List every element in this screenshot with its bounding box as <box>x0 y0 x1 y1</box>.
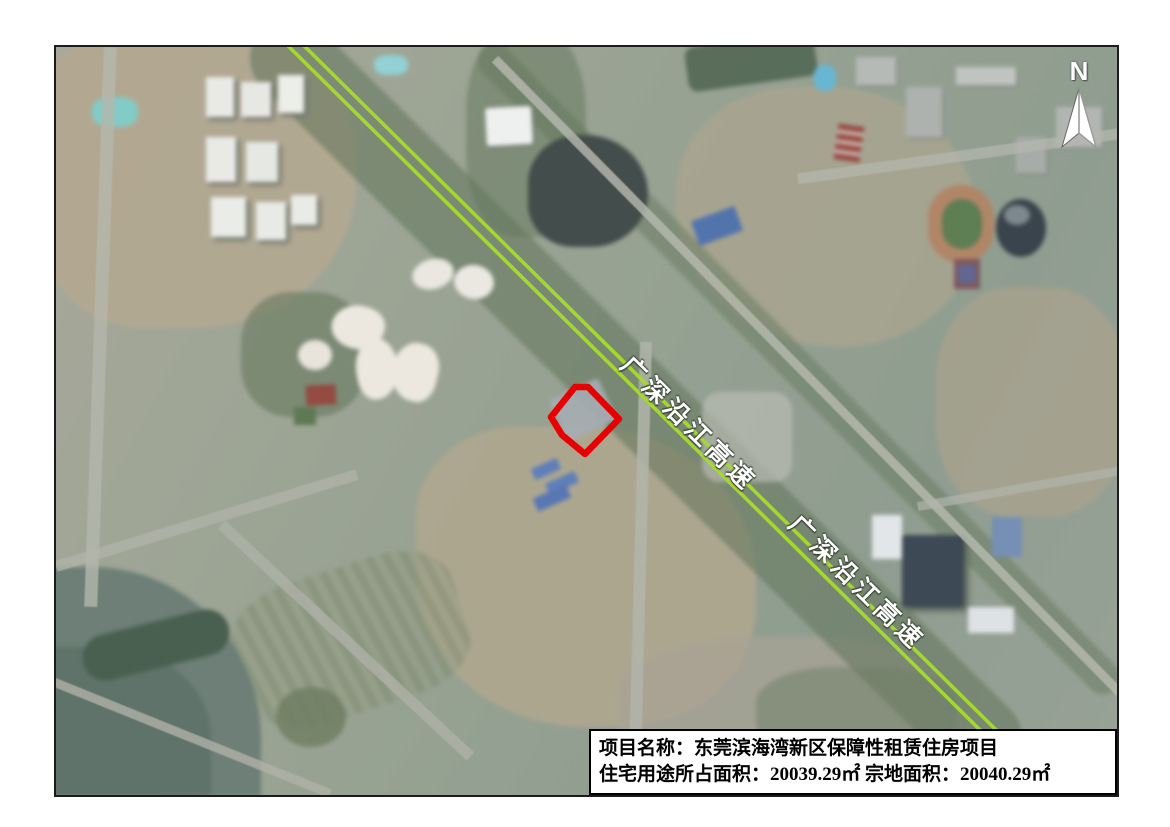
satellite-map: 广深沿江高速 广深沿江高速 N 项目名称：东莞滨海湾新区保障性租赁住房项目 住宅… <box>54 45 1119 797</box>
north-letter: N <box>1056 57 1102 85</box>
annotation-overlay <box>56 47 1117 795</box>
project-site-outline <box>551 387 619 454</box>
project-info-box: 项目名称：东莞滨海湾新区保障性租赁住房项目 住宅用途所占面积：20039.29㎡… <box>589 729 1117 795</box>
project-name-line: 项目名称：东莞滨海湾新区保障性租赁住房项目 <box>599 736 1107 762</box>
north-arrow-icon <box>1059 87 1099 149</box>
page: { "map": { "type": "satellite-annotation… <box>0 0 1170 827</box>
project-area-line: 住宅用途所占面积：20039.29㎡ 宗地面积：20040.29㎡ <box>599 762 1107 788</box>
north-arrow: N <box>1056 57 1102 149</box>
